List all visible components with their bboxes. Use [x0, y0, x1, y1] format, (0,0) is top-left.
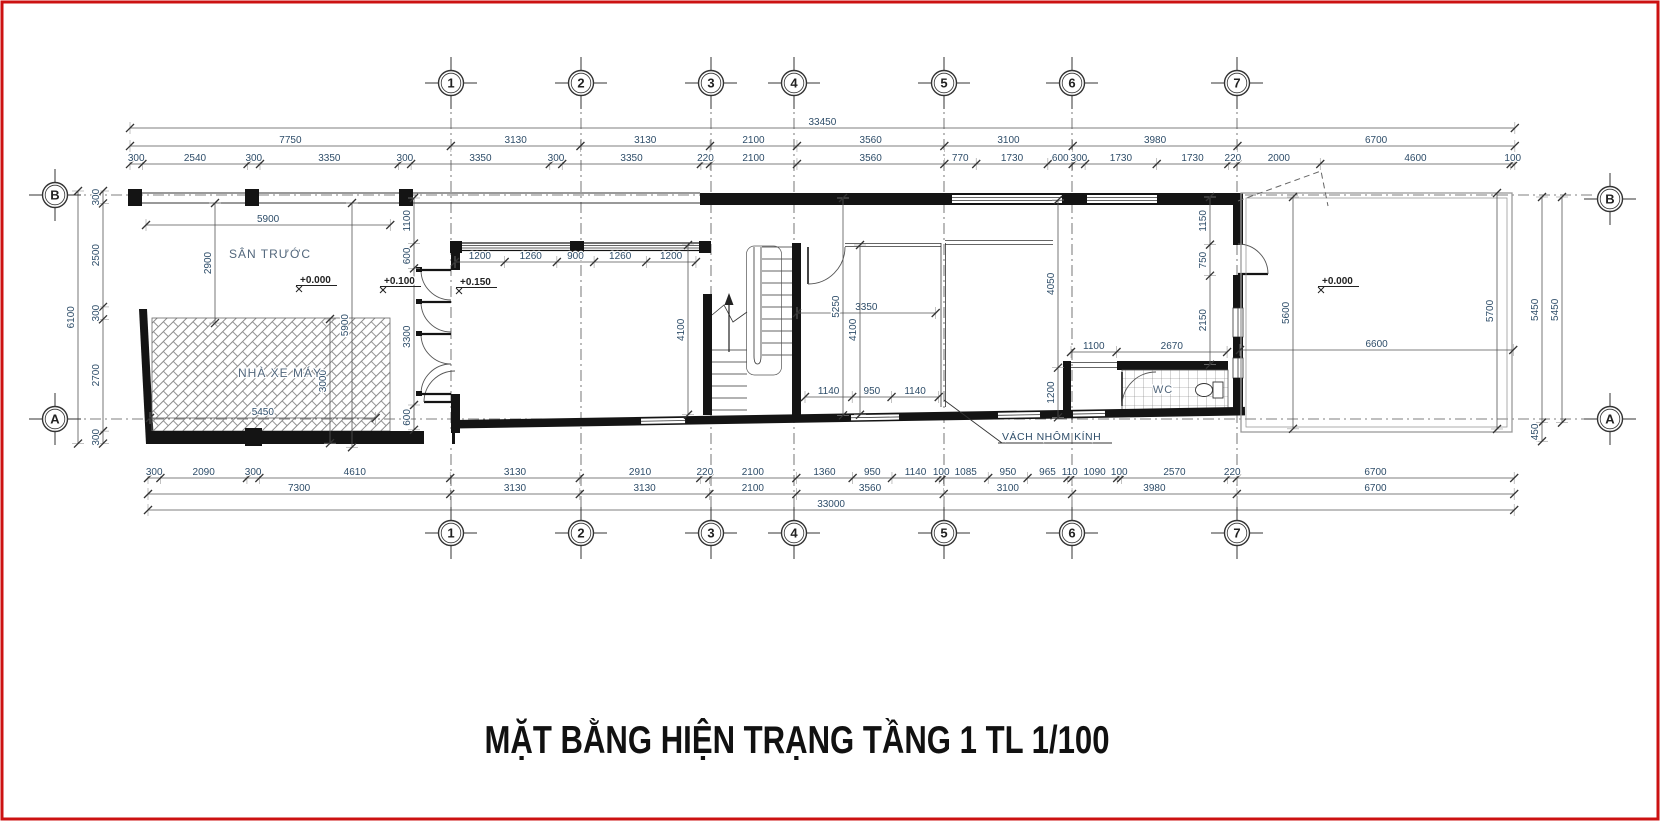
dimension-text: 7750 [279, 135, 302, 146]
dimension-text: 4610 [344, 467, 367, 478]
dim-chain-door7-chain: 11507502150 [1198, 193, 1216, 369]
dimension-text: 750 [1198, 251, 1209, 268]
dimension-text: 1360 [813, 467, 836, 478]
wc [1063, 361, 1228, 412]
dimension-text: 1085 [955, 467, 978, 478]
dimension-text: 220 [1224, 467, 1241, 478]
dimension-text: 3980 [1144, 135, 1167, 146]
dimension-text: 220 [1225, 153, 1242, 164]
dimension-text: 1100 [402, 210, 413, 232]
dim-chain-porch-6600: 6600 [1236, 339, 1517, 356]
grid-bubble-A: A [1584, 393, 1636, 445]
toilet-tank-icon [1213, 382, 1223, 398]
dimension-text: 300 [146, 467, 163, 478]
dimension-text: 2100 [742, 467, 765, 478]
dim-chain-left-minor: 30025003002700300 [91, 187, 109, 448]
dim-chain-top-minor: 3002540300335030033503003350220210035607… [126, 153, 1522, 170]
grid-bubble-label: 3 [707, 76, 714, 91]
dimension-text: 3130 [504, 467, 527, 478]
top-window-2 [1087, 195, 1157, 203]
dimension-text: 4600 [1404, 153, 1427, 164]
grid-bubble-4: 4 [768, 507, 820, 559]
dimension-text: 2910 [629, 467, 652, 478]
grid-bubble-label: 4 [790, 526, 798, 541]
dimension-text: 100 [1111, 467, 1128, 478]
dimension-text: 6100 [66, 306, 77, 329]
dimension-text: 600 [402, 409, 413, 426]
dimension-text: 600 [1052, 153, 1069, 164]
dim-chain-bot-minor: 3002090300461031302910220210013609501140… [144, 467, 1518, 484]
dimension-text: 6700 [1364, 483, 1387, 494]
top-wall [700, 193, 1243, 205]
dim-chain-top-major: 77503130313021003560310039806700 [126, 135, 1519, 152]
grid-bubble-label: 3 [707, 526, 714, 541]
dimension-text: 220 [696, 467, 713, 478]
grid-bubble-label: 4 [790, 76, 798, 91]
dimension-text: 1200 [1046, 381, 1057, 404]
level-marker-text: +0.150 [460, 277, 491, 288]
grid-bubble-label: A [50, 412, 60, 427]
grid-bubble-3: 3 [685, 507, 737, 559]
dimension-text: 3100 [997, 135, 1020, 146]
level-marker-text: +0.000 [1322, 276, 1353, 287]
room-label: SÂN TRƯỚC [229, 246, 311, 261]
grid-bubble-label: 2 [577, 526, 584, 541]
dimension-text: 110 [1062, 467, 1078, 478]
stair-left-wall [703, 294, 712, 415]
grid-bubble-label: 1 [447, 76, 454, 91]
dimension-text: 3350 [469, 153, 492, 164]
building-geometry [128, 171, 1512, 446]
dim-chain-room1-chain: 11006003300600 [402, 194, 420, 434]
dimension-text: 2150 [1198, 309, 1209, 332]
dim-chain-porch-5600: 5600 [1281, 193, 1299, 433]
callout-text: VÁCH NHÔM KÍNH [1002, 430, 1101, 443]
stair [703, 243, 801, 415]
grid-bubble-label: A [1605, 412, 1615, 427]
dimension-text: 3130 [633, 483, 656, 494]
dimension-text: 5700 [1485, 299, 1496, 322]
dimension-text: 2570 [1163, 467, 1186, 478]
grid-bubble-2: 2 [555, 507, 607, 559]
awning-roof-dashed [1238, 171, 1328, 206]
dimension-text: 300 [245, 467, 262, 478]
dimension-text: 300 [128, 153, 145, 164]
dimension-text: 2500 [91, 244, 102, 267]
dimension-text: 1260 [520, 251, 543, 262]
dimension-text: 2100 [742, 483, 765, 494]
top-window-1 [952, 195, 1062, 203]
bottom-window-3 [998, 412, 1040, 418]
dimension-text: 1200 [469, 251, 492, 262]
dimension-text: 1260 [609, 251, 632, 262]
dimension-text: 770 [952, 153, 969, 164]
grid-bubble-6: 6 [1046, 507, 1098, 559]
dimension-text: 950 [864, 386, 881, 397]
dimension-text: 5450 [252, 407, 275, 418]
dimension-text: 220 [697, 153, 714, 164]
dimension-text: 2670 [1161, 341, 1184, 352]
dimension-text: 3560 [860, 135, 883, 146]
dimension-text: 4050 [1046, 272, 1057, 295]
dimension-text: 5900 [257, 214, 280, 225]
dimension-text: 3560 [859, 483, 882, 494]
dim-chain-right-inner: 5450450 [1530, 193, 1548, 445]
room-label: WC [1153, 384, 1173, 396]
grid-bubble-B: B [1584, 173, 1636, 225]
dimension-text: 3350 [855, 302, 878, 313]
dimension-text: 965 [1039, 467, 1056, 478]
dimension-text: 3350 [620, 153, 643, 164]
dimension-text: 2000 [1268, 153, 1291, 164]
room-label: NHÀ XE MÁY [238, 365, 322, 380]
grid-bubble-label: 6 [1068, 526, 1075, 541]
dimension-text: 4100 [676, 318, 687, 341]
dimension-text: 33000 [817, 499, 845, 510]
dimension-text: 450 [1530, 423, 1541, 440]
dimension-text: 300 [397, 153, 414, 164]
dim-chain-bot-total: 33000 [144, 499, 1518, 516]
grid-bubble-label: B [1605, 192, 1614, 207]
dimension-text: 2090 [193, 467, 216, 478]
grid-bubble-label: 1 [447, 526, 454, 541]
grid-bubble-1: 1 [425, 57, 477, 109]
dim-chain-right-outer: 5450 [1550, 193, 1568, 427]
dim-chain-windows: 1200126090012601200 [451, 251, 700, 268]
dimension-text: 600 [402, 247, 413, 264]
stair-direction-arrow [725, 293, 734, 305]
dimension-text: 2900 [203, 251, 214, 274]
dimension-text: 300 [1071, 153, 1088, 164]
dimension-text: 5600 [1281, 301, 1292, 324]
dimension-text: 5250 [831, 295, 842, 318]
dimension-text: 5900 [340, 314, 351, 337]
dim-chain-yard-2900: 2900 [203, 199, 221, 327]
stair-right-wall [792, 243, 801, 415]
dim-chain-left-total: 6100 [66, 187, 84, 448]
dimension-text: 6700 [1365, 135, 1388, 146]
dimension-text: 1090 [1083, 467, 1106, 478]
dim-chain-wc-top: 11002670 [1067, 341, 1231, 358]
wc-top-wall [1117, 361, 1228, 370]
grid-bubble-label: 7 [1233, 76, 1240, 91]
dimension-text: 3980 [1143, 483, 1166, 494]
dimension-text: 950 [1000, 467, 1017, 478]
dimension-text: 300 [548, 153, 565, 164]
grid-bubble-label: 5 [940, 76, 947, 91]
dimension-chains: 3345077503130313021003560310039806700300… [66, 117, 1568, 516]
grid-bubble-label: 7 [1233, 526, 1240, 541]
bottom-wall [455, 407, 1245, 429]
dim-chain-porch-5700: 5700 [1485, 189, 1503, 433]
dimension-text: 950 [864, 467, 881, 478]
grid-bubble-A: A [29, 393, 81, 445]
dimension-text: 3100 [997, 483, 1020, 494]
level-marker: +0.150 [456, 277, 497, 294]
level-marker: +0.000 [1318, 276, 1359, 293]
g1-wall-doors [416, 243, 460, 433]
dimension-text: 3300 [402, 325, 413, 348]
dimension-text: 300 [245, 153, 262, 164]
dimension-text: 1150 [1198, 210, 1209, 232]
dimension-text: 300 [91, 188, 102, 205]
grid-bubble-1: 1 [425, 507, 477, 559]
dimension-text: 3130 [505, 135, 528, 146]
dimension-text: 900 [567, 251, 584, 262]
stair-treads-lower [712, 350, 747, 410]
grid-bubble-3: 3 [685, 57, 737, 109]
dimension-text: 2700 [91, 364, 102, 387]
stair-treads-up [762, 247, 792, 355]
dimension-text: 1730 [1110, 153, 1133, 164]
level-marker-text: +0.100 [384, 276, 415, 287]
dimension-text: 6700 [1364, 467, 1387, 478]
glass-partition [941, 241, 1053, 408]
level-marker-text: +0.000 [300, 275, 331, 286]
dim-chain-yard-5900: 5900 [142, 214, 394, 231]
dim-chain-wc-4050: 40501200 [1046, 196, 1064, 421]
drawing-title: MẶT BẰNG HIỆN TRẠNG TẦNG 1 TL 1/100 [485, 718, 1110, 762]
dim-chain-room1-4100: 4100 [676, 241, 694, 419]
dimension-text: 1730 [1181, 153, 1204, 164]
dimension-text: 7300 [288, 483, 311, 494]
dimension-text: 1730 [1001, 153, 1024, 164]
dimension-text: 33450 [809, 117, 837, 128]
grid-bubble-6: 6 [1046, 57, 1098, 109]
dimension-text: 300 [91, 304, 102, 321]
grid-bubble-7: 7 [1211, 507, 1263, 559]
dimension-text: 5450 [1530, 298, 1541, 321]
dimension-text: 3350 [318, 153, 341, 164]
grid-bubble-5: 5 [918, 57, 970, 109]
grid-bubble-label: 2 [577, 76, 584, 91]
dim-chain-bot-major: 73003130313021003560310039806700 [144, 483, 1518, 500]
dimension-text: 1140 [905, 467, 927, 478]
porch [1238, 171, 1512, 432]
grid-bubble-2: 2 [555, 57, 607, 109]
dimension-text: 4100 [848, 318, 859, 341]
dimension-text: 2100 [742, 153, 765, 164]
dimension-text: 3130 [634, 135, 657, 146]
toilet-icon [1196, 384, 1213, 397]
grid-bubble-B: B [29, 169, 81, 221]
level-marker: +0.000 [296, 275, 337, 292]
grid-bubble-label: 6 [1068, 76, 1075, 91]
dim-chain-room-3350: 3350 [793, 302, 940, 319]
dimension-text: 1140 [904, 386, 926, 397]
dimension-text: 3560 [860, 153, 883, 164]
dimension-text: 6600 [1365, 339, 1388, 350]
dim-chain-top-total: 33450 [126, 117, 1519, 134]
dimension-text: 1100 [1083, 341, 1105, 352]
grid-bubble-7: 7 [1211, 57, 1263, 109]
g7-wall [1233, 193, 1268, 412]
wc-partition-wall [1063, 361, 1071, 412]
grid-bubble-label: B [50, 188, 59, 203]
dimension-text: 2100 [742, 135, 765, 146]
dimension-text: 300 [91, 429, 102, 446]
garage-door-swing [424, 371, 455, 402]
dimension-text: 1200 [660, 251, 683, 262]
stair-handrail [747, 246, 782, 375]
grid-bubble-5: 5 [918, 507, 970, 559]
floor-plan-canvas: 3345077503130313021003560310039806700300… [0, 0, 1660, 821]
dimension-text: 2540 [184, 153, 207, 164]
bottom-window-4 [1073, 411, 1105, 417]
porch-door-swing [1238, 244, 1268, 274]
grid-bubble-4: 4 [768, 57, 820, 109]
glass-partition-callout: VÁCH NHÔM KÍNH [944, 400, 1112, 443]
dimension-text: 5450 [1550, 298, 1561, 321]
dimension-text: 3130 [504, 483, 527, 494]
stair-door [808, 244, 941, 285]
grid-bubble-label: 5 [940, 526, 947, 541]
level-marker: +0.100 [380, 276, 421, 293]
stair-well [754, 356, 761, 364]
dimension-text: 100 [1504, 153, 1521, 164]
dimension-text: 1140 [818, 386, 840, 397]
dim-chain-room-glass: 11409501140 [801, 386, 943, 403]
bottom-window-1 [641, 418, 685, 424]
dimension-text: 100 [933, 467, 950, 478]
